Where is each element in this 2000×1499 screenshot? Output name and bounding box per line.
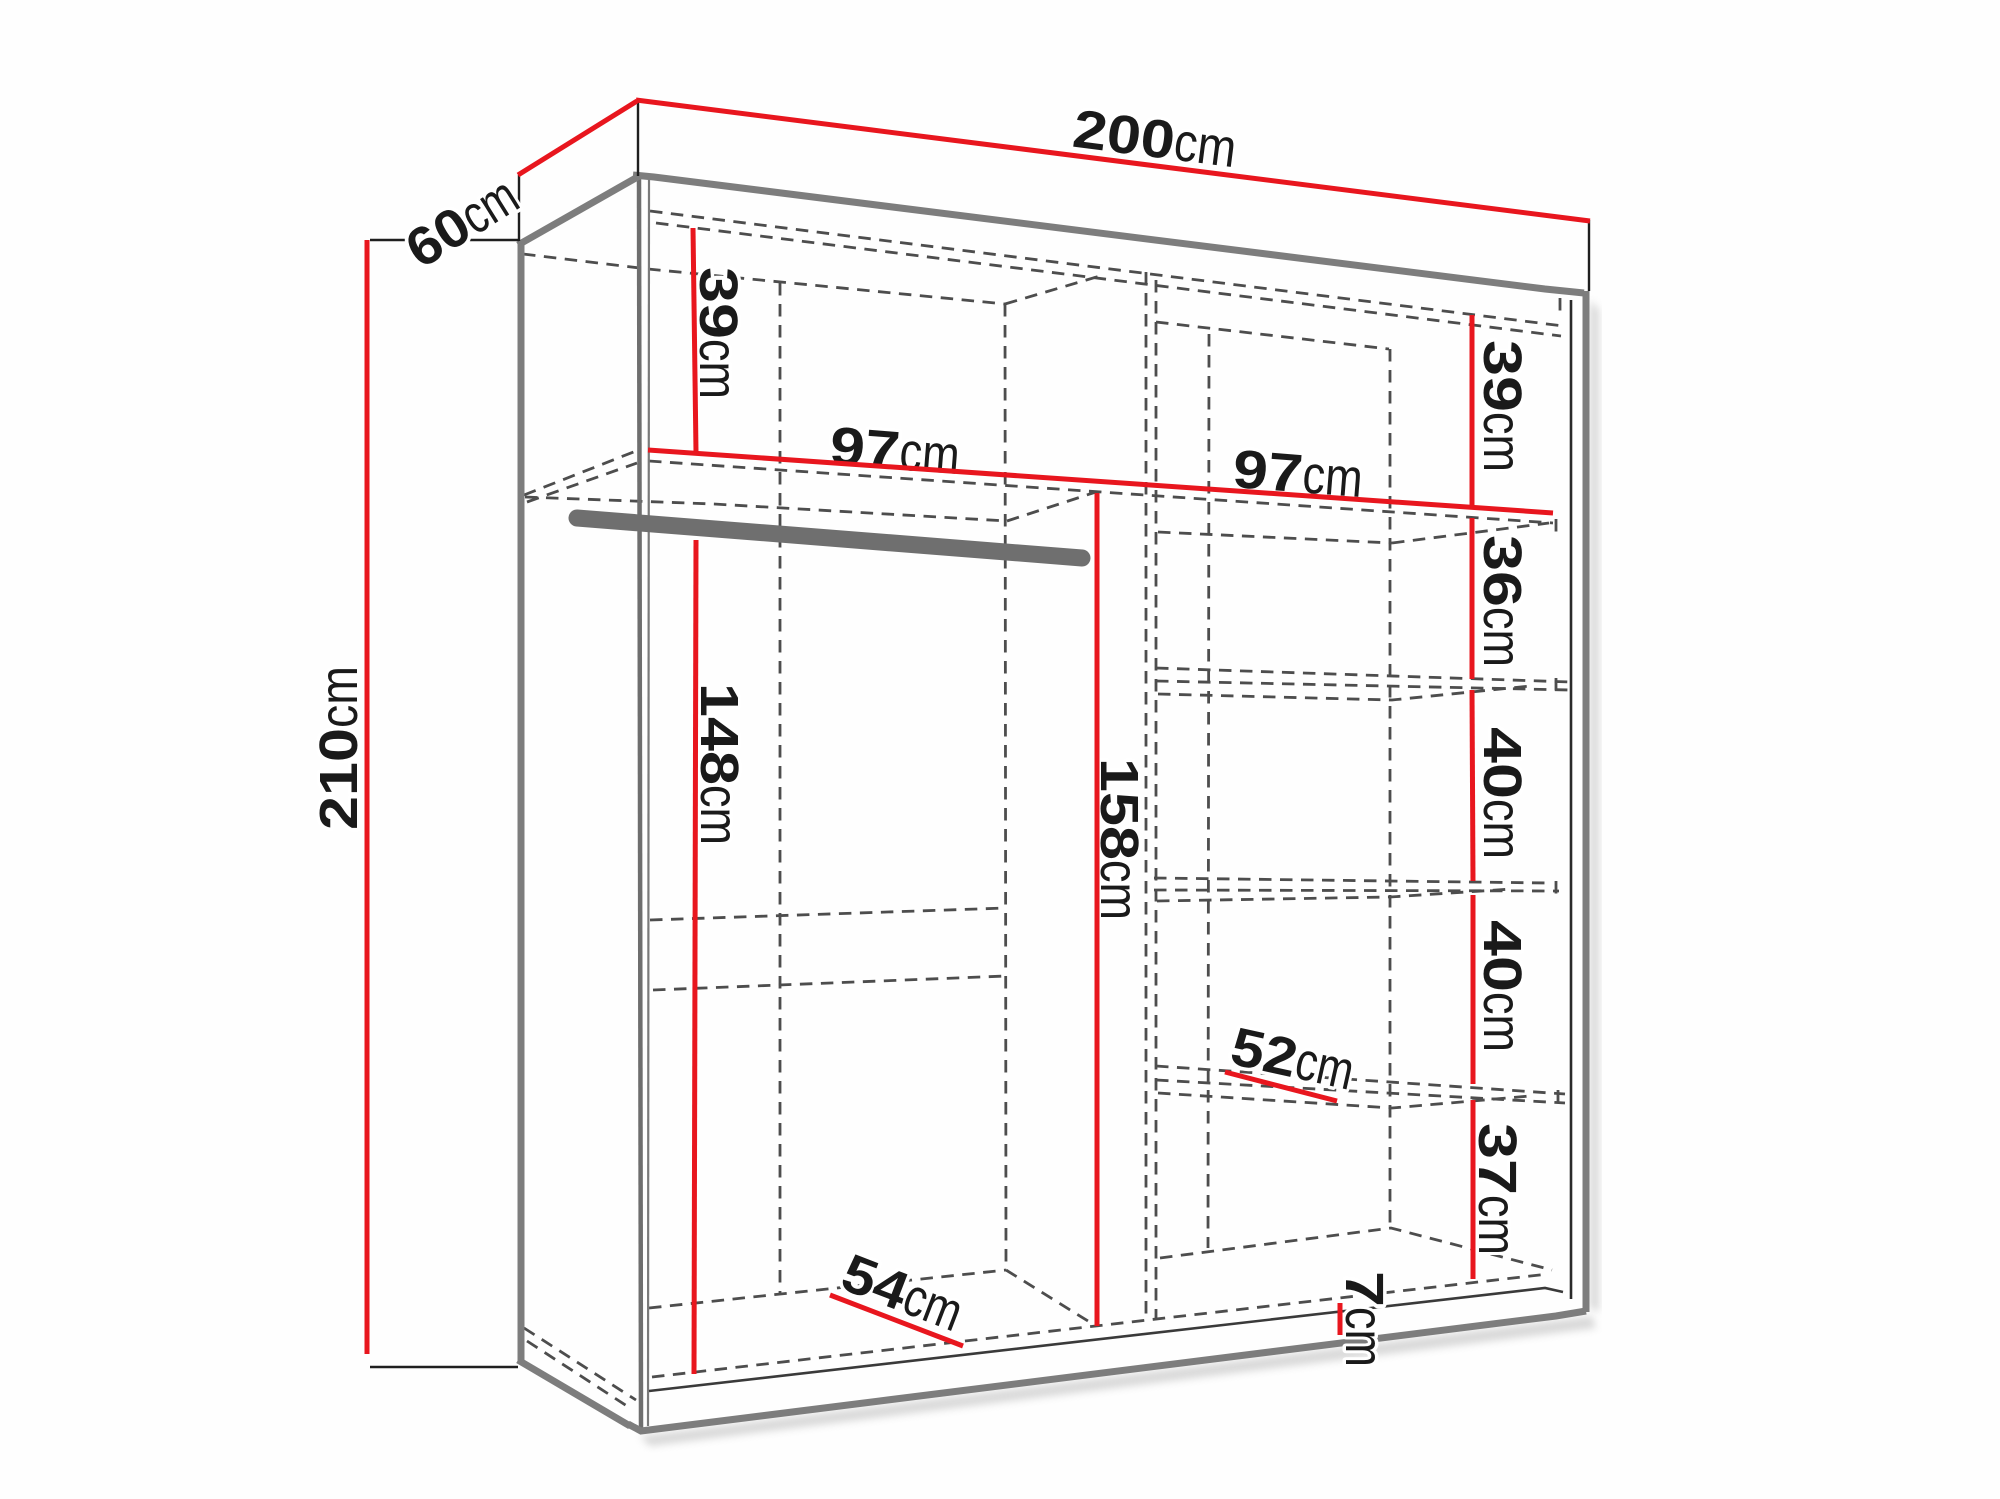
svg-text:cm: cm bbox=[689, 785, 749, 845]
svg-text:cm: cm bbox=[1467, 1195, 1527, 1255]
svg-text:39: 39 bbox=[1472, 340, 1532, 412]
svg-text:40: 40 bbox=[1472, 727, 1532, 799]
svg-text:cm: cm bbox=[1472, 799, 1532, 859]
svg-text:cm: cm bbox=[897, 421, 962, 486]
svg-text:cm: cm bbox=[1472, 412, 1532, 472]
svg-text:cm: cm bbox=[1472, 992, 1532, 1052]
svg-text:210: 210 bbox=[309, 728, 369, 830]
svg-text:36: 36 bbox=[1472, 535, 1532, 607]
svg-text:7: 7 bbox=[1334, 1271, 1394, 1307]
svg-text:cm: cm bbox=[309, 666, 369, 728]
svg-text:97: 97 bbox=[828, 416, 902, 481]
svg-text:cm: cm bbox=[1472, 607, 1532, 667]
svg-text:39: 39 bbox=[688, 267, 748, 339]
svg-text:cm: cm bbox=[1334, 1307, 1394, 1367]
svg-text:37: 37 bbox=[1467, 1123, 1527, 1195]
svg-text:40: 40 bbox=[1472, 920, 1532, 992]
